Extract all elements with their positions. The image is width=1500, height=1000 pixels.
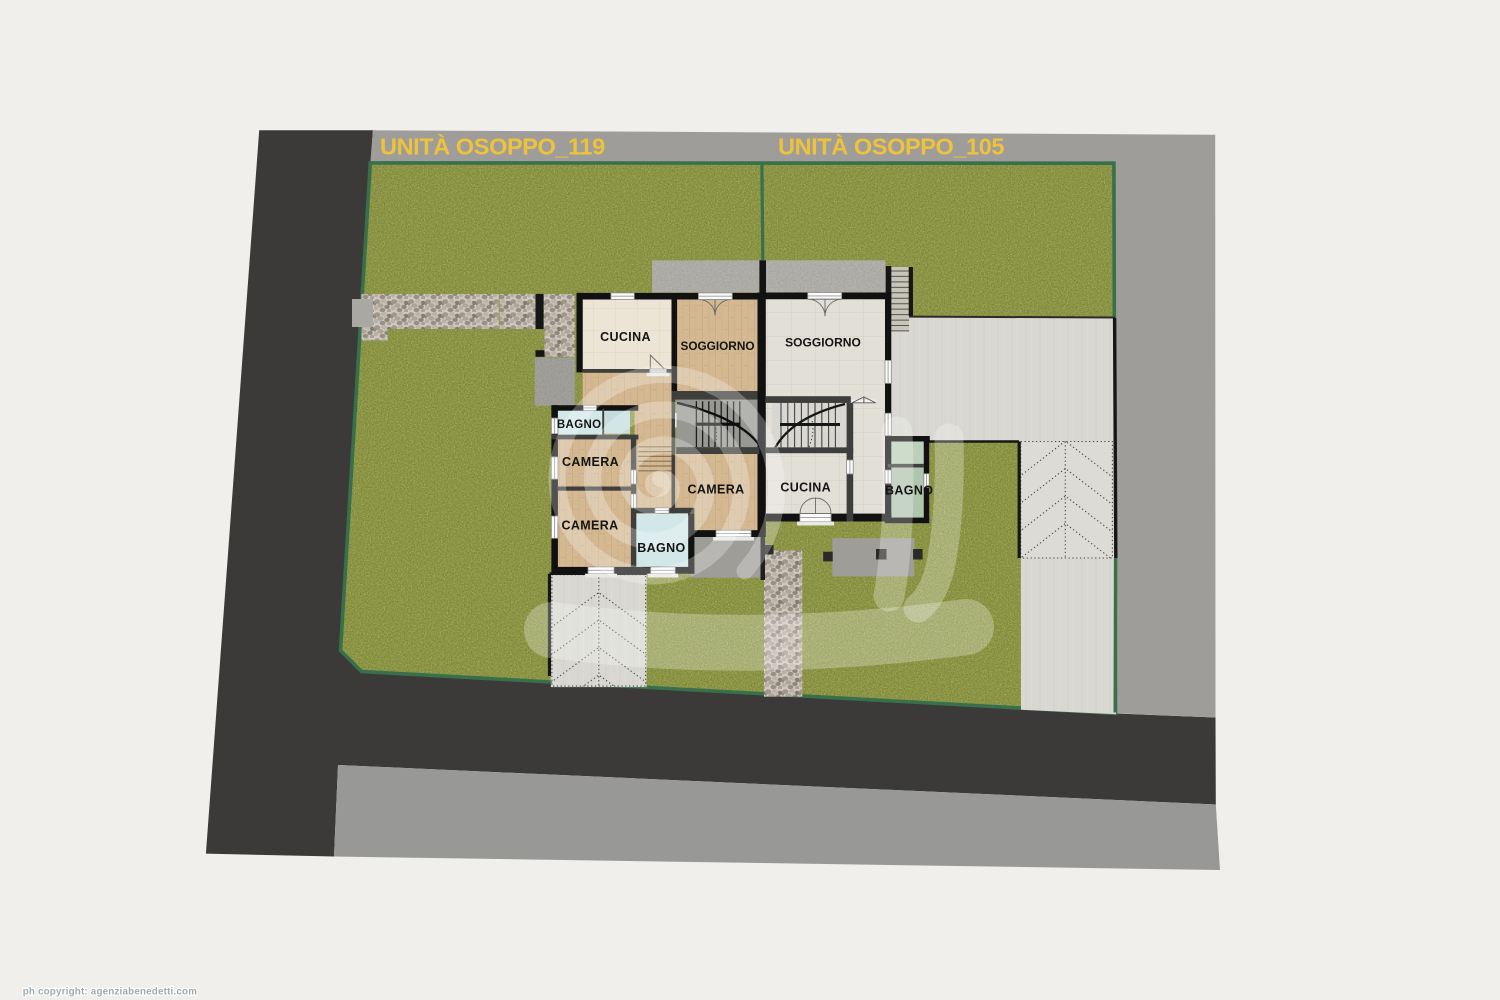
svg-text:UNITÀ OSOPPO_105: UNITÀ OSOPPO_105	[778, 133, 1004, 160]
svg-text:CUCINA: CUCINA	[600, 330, 651, 344]
svg-text:CUCINA: CUCINA	[780, 481, 831, 495]
svg-text:CAMERA: CAMERA	[688, 483, 745, 497]
svg-text:BAGNO: BAGNO	[637, 541, 685, 555]
svg-text:SOGGIORNO: SOGGIORNO	[785, 336, 861, 350]
svg-text:BAGNO: BAGNO	[885, 484, 933, 498]
svg-text:ph copyright: agenziabenedetti: ph copyright: agenziabenedetti.com	[23, 987, 198, 998]
svg-text:CAMERA: CAMERA	[562, 519, 619, 533]
svg-text:CAMERA: CAMERA	[562, 455, 619, 469]
svg-text:BAGNO: BAGNO	[557, 419, 602, 431]
svg-text:UNITÀ OSOPPO_119: UNITÀ OSOPPO_119	[380, 133, 605, 160]
svg-text:SOGGIORNO: SOGGIORNO	[680, 339, 754, 353]
